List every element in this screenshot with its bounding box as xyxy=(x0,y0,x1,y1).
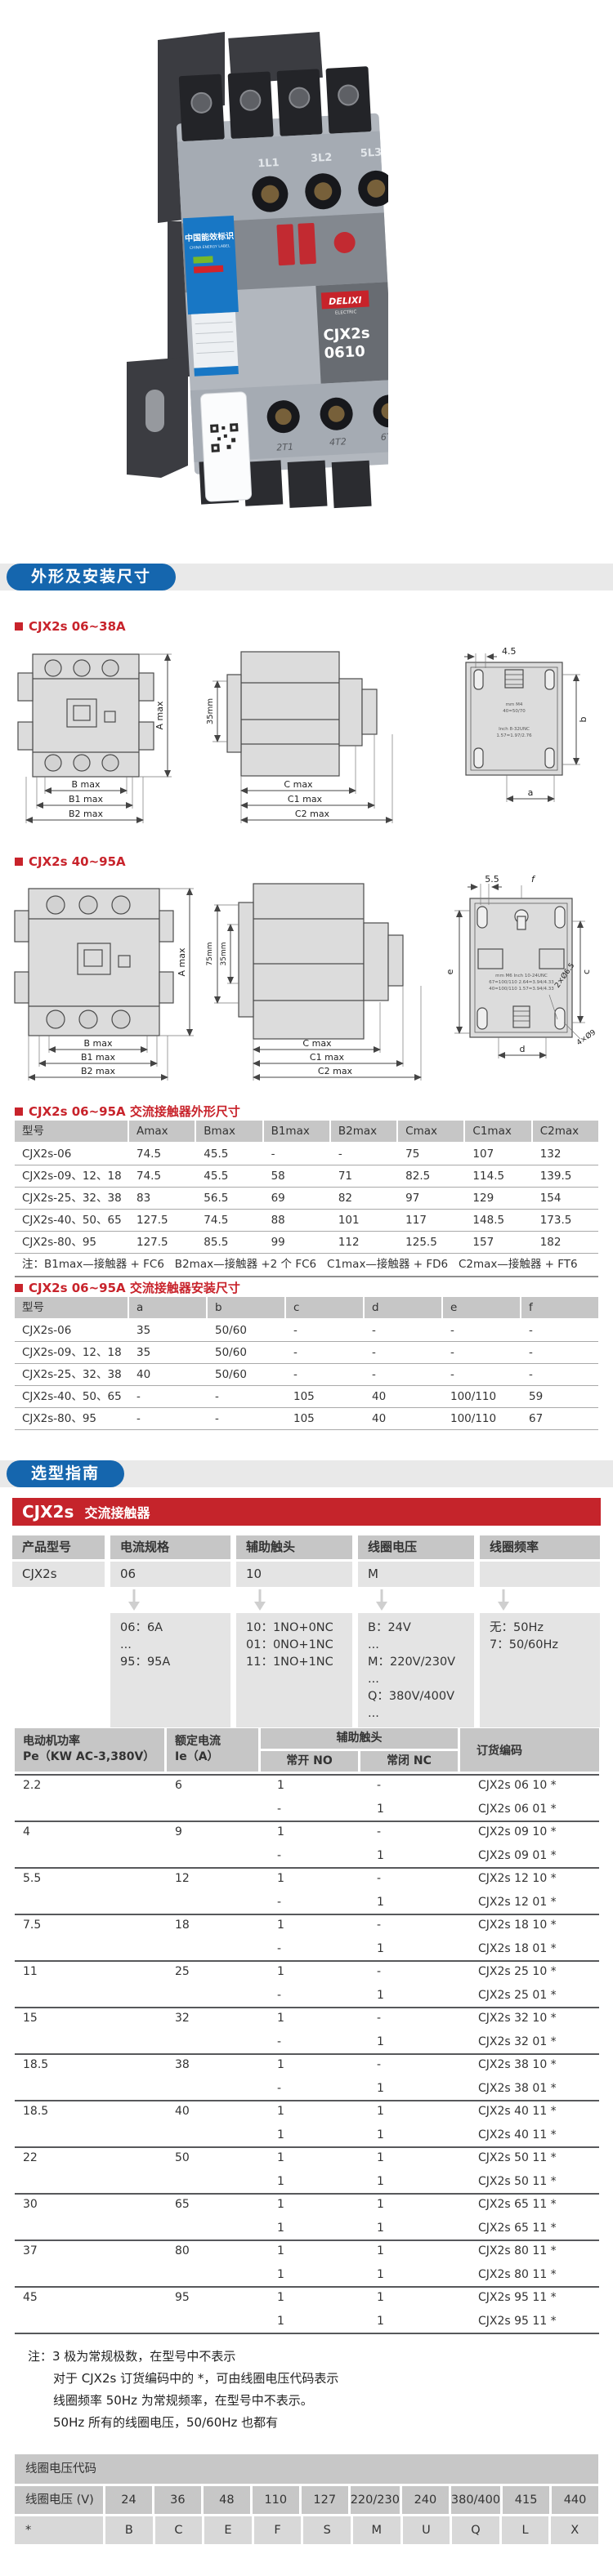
motor-power-cell: 2.2 xyxy=(15,1774,164,1798)
dim-b-max: B max xyxy=(83,1038,112,1049)
bmax-cell: 45.5 xyxy=(196,1143,262,1165)
b1max-cell: 58 xyxy=(264,1165,329,1187)
rated-current-cell: 32 xyxy=(167,2007,258,2030)
red-square-bullet-icon xyxy=(15,622,23,631)
drawing2-label-text: CJX2s 40~95A xyxy=(29,854,126,869)
c-cell: - xyxy=(286,1364,363,1385)
order-code-cell: CJX2s 95 11 * xyxy=(460,2310,599,2333)
c2max-cell: 132 xyxy=(533,1143,598,1165)
order-code-cell: CJX2s 18 10 * xyxy=(460,1914,599,1937)
dim-c1-max: C1 max xyxy=(310,1052,345,1063)
no-contact-cell: 1 xyxy=(261,1914,358,1937)
rated-current-cell: 6 xyxy=(167,1774,258,1798)
c2max-cell: 173.5 xyxy=(533,1210,598,1231)
order-code-cell: CJX2s 95 11 * xyxy=(460,2286,599,2310)
c-cell: 105 xyxy=(286,1386,363,1407)
banner-model: CJX2s xyxy=(22,1502,74,1522)
arrow-cell xyxy=(480,1589,600,1611)
detail-spacer xyxy=(12,1613,105,1727)
order-code-cell: CJX2s 80 11 * xyxy=(460,2240,599,2263)
bmax-cell: 56.5 xyxy=(196,1188,262,1209)
e-cell: 100/110 xyxy=(443,1386,520,1407)
c2max-cell: 139.5 xyxy=(533,1165,598,1187)
f-cell: - xyxy=(521,1320,598,1341)
nc-contact-cell: 1 xyxy=(360,2146,458,2170)
order-row: 1 1 CJX2s 65 11 * xyxy=(15,2217,599,2240)
no-contact-cell: - xyxy=(261,1984,358,2008)
rated-current-cell: 40 xyxy=(167,2100,258,2124)
plate-line-2: 67=100/110 2.64=3.94/4.33 xyxy=(489,980,554,985)
no-subheader: 常开 NO xyxy=(261,1751,358,1772)
voltage-cell: 440 xyxy=(552,2486,598,2514)
model-name: CJX2s xyxy=(323,325,370,345)
no-contact-cell: 1 xyxy=(261,2146,358,2170)
no-contact-cell: 1 xyxy=(261,1774,358,1798)
dim-e: e xyxy=(445,969,455,974)
code-cell: B xyxy=(105,2516,153,2544)
column-header: a xyxy=(129,1297,206,1318)
coil-voltage-row: 线圈电压 (V) 243648110127220/230240380/40041… xyxy=(15,2486,598,2514)
c2max-cell: 182 xyxy=(533,1232,598,1253)
order-row: 18.5 40 1 1 CJX2s 40 11 * xyxy=(15,2100,599,2124)
nc-contact-cell: 1 xyxy=(360,1798,458,1821)
bracket-slot xyxy=(145,390,164,432)
b2max-cell: 112 xyxy=(331,1232,396,1253)
nc-contact-cell: 1 xyxy=(360,2217,458,2240)
plate-line-3: Inch 8-32UNC xyxy=(499,727,530,732)
rated-current-cell: 80 xyxy=(167,2240,258,2263)
down-arrow-icon xyxy=(128,1589,140,1611)
voltage-cell: 380/400 xyxy=(451,2486,500,2514)
rated-current-line2: Ie（A） xyxy=(175,1749,258,1765)
e-cell: 100/110 xyxy=(443,1408,520,1429)
drawing2-label: CJX2s 40~95A xyxy=(15,854,126,869)
option-line: 95：95A xyxy=(120,1654,230,1671)
rated-current-cell xyxy=(167,2263,258,2287)
order-row: 1 1 CJX2s 50 11 * xyxy=(15,2170,599,2194)
motor-power-cell: 18.5 xyxy=(15,2053,164,2077)
voltage-cell: 220/230 xyxy=(351,2486,400,2514)
motor-power-cell xyxy=(15,1937,164,1961)
a-cell: 35 xyxy=(129,1342,206,1363)
motor-power-cell xyxy=(15,1891,164,1914)
mounting-dimension-table: 型号abcdef CJX2s-06 35 50/60 - - - - CJX2s… xyxy=(15,1297,598,1430)
option-line: ... xyxy=(368,1671,474,1688)
motor-power-cell: 18.5 xyxy=(15,2100,164,2124)
motor-power-cell xyxy=(15,2077,164,2101)
dim-b-max: B max xyxy=(71,779,100,790)
order-code-cell: CJX2s 38 10 * xyxy=(460,2053,599,2077)
outline-table-body: CJX2s-06 74.5 45.5 - - 75 107 132 CJX2s-… xyxy=(15,1143,598,1254)
terminal-label-6t3: 6T3 xyxy=(380,431,388,443)
plate-line-4: 1.57=1.97/2.76 xyxy=(496,733,532,738)
nc-contact-cell: 1 xyxy=(360,2170,458,2194)
dim-b2-max: B2 max xyxy=(69,809,103,819)
order-row: - 1 CJX2s 09 01 * xyxy=(15,1844,599,1868)
plate-line-3: 40=100/110 1.57=3.94/4.33 xyxy=(489,987,554,992)
ordering-table: 电动机功率 Pe（KW AC-3,380V） 额定电流 Ie（A） 辅助触头 订… xyxy=(15,1728,599,2334)
rated-current-header: 额定电流 Ie（A） xyxy=(167,1728,258,1772)
red-square-bullet-icon xyxy=(15,1284,23,1292)
dim-c-max: C max xyxy=(302,1038,332,1049)
dimension-drawing-40-95: A max B max B1 max B2 max 75mm 35mm C ma… xyxy=(8,874,605,1091)
table-row: CJX2s-25、32、38 40 50/60 - - - - xyxy=(15,1364,598,1386)
selection-value-cell xyxy=(480,1562,600,1587)
nc-contact-cell: 1 xyxy=(360,2077,458,2101)
order-code-cell: CJX2s 12 10 * xyxy=(460,1867,599,1891)
dim-b2-max: B2 max xyxy=(81,1066,115,1076)
order-row: 1 1 CJX2s 80 11 * xyxy=(15,2263,599,2287)
selection-column-header: 产品型号 xyxy=(12,1535,105,1559)
table-row: CJX2s-80、95 127.5 85.5 99 112 125.5 157 … xyxy=(15,1232,598,1254)
motor-power-line2: Pe（KW AC-3,380V） xyxy=(23,1749,164,1765)
nc-contact-cell: - xyxy=(360,1867,458,1891)
b-cell: - xyxy=(208,1386,284,1407)
rated-current-cell: 65 xyxy=(167,2193,258,2217)
selection-detail-row: 06：6A...95：95A 10：1NO+0NC01：0NO+1NC11：1N… xyxy=(12,1613,600,1727)
nc-contact-cell: 1 xyxy=(360,2263,458,2287)
c-cell: 105 xyxy=(286,1408,363,1429)
c1max-cell: 157 xyxy=(465,1232,530,1253)
nc-contact-cell: - xyxy=(360,1960,458,1984)
code-cell: M xyxy=(353,2516,400,2544)
section-bar-dimensions: 外形及安装尺寸 xyxy=(0,564,613,591)
no-contact-cell: - xyxy=(261,1844,358,1868)
code-cell: F xyxy=(254,2516,302,2544)
cmax-cell: 75 xyxy=(398,1143,463,1165)
no-contact-cell: 1 xyxy=(261,2193,358,2217)
qr-label xyxy=(200,392,252,502)
rated-current-cell xyxy=(167,1844,258,1868)
c1max-cell: 148.5 xyxy=(465,1210,530,1231)
column-header: 型号 xyxy=(15,1121,128,1142)
coil-frequency-options: 无：50Hz7：50/60Hz xyxy=(480,1613,600,1727)
voltage-cell: 127 xyxy=(302,2486,348,2514)
motor-power-cell xyxy=(15,1984,164,2008)
a-cell: - xyxy=(129,1386,206,1407)
section-title-dimensions: 外形及安装尺寸 xyxy=(7,564,176,591)
nc-contact-cell: 1 xyxy=(360,2286,458,2310)
order-code-cell: CJX2s 50 11 * xyxy=(460,2146,599,2170)
table-row: CJX2s-40、50、65 127.5 74.5 88 101 117 148… xyxy=(15,1210,598,1232)
table-row: CJX2s-80、95 - - 105 40 100/110 67 xyxy=(15,1408,598,1430)
order-row: - 1 CJX2s 38 01 * xyxy=(15,2077,599,2101)
section-title-selection: 选型指南 xyxy=(7,1460,124,1487)
e-cell: - xyxy=(443,1364,520,1385)
table-row: CJX2s-40、50、65 - - 105 40 100/110 59 xyxy=(15,1386,598,1408)
note-line-4: 50Hz 所有的线圈电压，50/60Hz 也都有 xyxy=(53,2412,600,2434)
code-cell: L xyxy=(502,2516,549,2544)
dim-c2-max: C2 max xyxy=(318,1066,353,1076)
terminal-label-3l2: 3L2 xyxy=(311,152,333,165)
b2max-cell: 82 xyxy=(331,1188,396,1209)
dim-c1-max: C1 max xyxy=(288,794,323,804)
outline-table-header: 型号AmaxBmaxB1maxB2maxCmaxC1maxC2max xyxy=(15,1121,598,1142)
bmax-cell: 45.5 xyxy=(196,1165,262,1187)
c-cell: - xyxy=(286,1320,363,1341)
model-cell: CJX2s-40、50、65 xyxy=(15,1210,128,1231)
nc-contact-cell: - xyxy=(360,2007,458,2030)
order-row: 15 32 1 - CJX2s 32 10 * xyxy=(15,2007,599,2030)
code-cell: S xyxy=(303,2516,351,2544)
red-square-bullet-icon xyxy=(15,1108,23,1116)
rated-current-cell xyxy=(167,2217,258,2240)
motor-power-cell xyxy=(15,1798,164,1821)
no-contact-cell: 1 xyxy=(261,2170,358,2194)
voltage-cell: 24 xyxy=(105,2486,152,2514)
back-plate-text: mm M6 Inch 10-24UNC 67=100/110 2.64=3.94… xyxy=(489,974,554,992)
b-cell: 50/60 xyxy=(208,1364,284,1385)
amax-cell: 83 xyxy=(129,1188,195,1209)
contactor-body: 1L1 3L2 5L3 中国能效标识 CHINA ENERGY LABEL DE… xyxy=(174,65,388,510)
order-row: 5.5 12 1 - CJX2s 12 10 * xyxy=(15,1867,599,1891)
column-header: f xyxy=(521,1297,598,1318)
motor-power-cell: 37 xyxy=(15,2240,164,2263)
column-header: C1max xyxy=(465,1121,530,1142)
down-arrow-icon xyxy=(498,1589,509,1611)
order-row: - 1 CJX2s 06 01 * xyxy=(15,1798,599,1821)
rated-current-cell xyxy=(167,2170,258,2194)
option-line: 11：1NO+1NC xyxy=(246,1654,352,1671)
bmax-cell: 85.5 xyxy=(196,1232,262,1253)
column-header: B2max xyxy=(331,1121,396,1142)
d-cell: - xyxy=(365,1364,441,1385)
no-contact-cell: 1 xyxy=(261,2100,358,2124)
order-code-cell: CJX2s 18 01 * xyxy=(460,1937,599,1961)
option-line: B：24V xyxy=(368,1620,474,1637)
aux-contact-header: 辅助触头 xyxy=(261,1728,458,1749)
a-cell: 40 xyxy=(129,1364,206,1385)
no-contact-cell: 1 xyxy=(261,2240,358,2263)
motor-power-cell xyxy=(15,2310,164,2333)
rated-current-cell: 12 xyxy=(167,1867,258,1891)
spec-panel xyxy=(191,312,238,368)
model-cell: CJX2s-06 xyxy=(15,1320,128,1341)
rated-current-cell xyxy=(167,2030,258,2054)
ordering-table-body: 2.2 6 1 - CJX2s 06 10 * - 1 CJX2s 06 01 … xyxy=(15,1774,599,2334)
back-view xyxy=(466,662,562,775)
order-code-cell: CJX2s 65 11 * xyxy=(460,2217,599,2240)
outline-dimension-table: 型号AmaxBmaxB1maxB2maxCmaxC1maxC2max CJX2s… xyxy=(15,1121,598,1277)
option-line: M：220V/230V xyxy=(368,1654,474,1671)
no-contact-cell: - xyxy=(261,2077,358,2101)
model-cell: CJX2s-80、95 xyxy=(15,1232,128,1253)
a-cell: - xyxy=(129,1408,206,1429)
model-cell: CJX2s-40、50、65 xyxy=(15,1386,128,1407)
rated-current-cell: 95 xyxy=(167,2286,258,2310)
motor-power-cell: 11 xyxy=(15,1960,164,1984)
column-header: b xyxy=(208,1297,284,1318)
contactor-photo-illustration: 1L1 3L2 5L3 中国能效标识 CHINA ENERGY LABEL DE… xyxy=(69,20,388,510)
arrow-cell xyxy=(110,1589,230,1611)
selection-column-header: 辅助触头 xyxy=(236,1535,352,1559)
side-view xyxy=(239,884,403,1039)
current-spec-options: 06：6A...95：95A xyxy=(110,1613,230,1727)
terminal-label-2t1: 2T1 xyxy=(276,442,293,453)
table-row: CJX2s-06 74.5 45.5 - - 75 107 132 xyxy=(15,1143,598,1165)
dim-b1-max: B1 max xyxy=(81,1052,115,1063)
option-line: 01：0NO+1NC xyxy=(246,1637,352,1654)
brand-name: DELIXI xyxy=(329,295,362,307)
coil-voltage-options: B：24V...M：220V/230V...Q：380V/400V... xyxy=(358,1613,474,1727)
nc-contact-cell: 1 xyxy=(360,1984,458,2008)
dim-a-hole: a xyxy=(528,787,534,798)
b1max-cell: 88 xyxy=(264,1210,329,1231)
no-contact-cell: 1 xyxy=(261,2124,358,2147)
selection-guide: 产品型号电流规格辅助触头线圈电压线圈频率 CJX2s0610M 06：6A...… xyxy=(12,1535,600,1727)
option-line: ... xyxy=(368,1637,474,1654)
rated-current-cell: 18 xyxy=(167,1914,258,1937)
voltage-cell: 110 xyxy=(253,2486,299,2514)
rated-current-cell xyxy=(167,1891,258,1914)
selection-arrow-row xyxy=(12,1589,600,1611)
option-line: Q：380V/400V xyxy=(368,1688,474,1705)
down-arrow-icon xyxy=(254,1589,266,1611)
no-contact-cell: - xyxy=(261,2030,358,2054)
order-row: 18.5 38 1 - CJX2s 38 10 * xyxy=(15,2053,599,2077)
b1max-cell: 99 xyxy=(264,1232,329,1253)
column-header: Bmax xyxy=(196,1121,262,1142)
a-cell: 35 xyxy=(129,1320,206,1341)
rated-current-cell xyxy=(167,2124,258,2147)
order-row: 7.5 18 1 - CJX2s 18 10 * xyxy=(15,1914,599,1937)
order-row: 2.2 6 1 - CJX2s 06 10 * xyxy=(15,1774,599,1798)
coil-voltage-code-table: 线圈电压代码 线圈电压 (V) 243648110127220/23024038… xyxy=(15,2454,598,2544)
dim-4-5: 4.5 xyxy=(502,646,517,657)
motor-power-cell: 4 xyxy=(15,1821,164,1844)
aux-contact-options: 10：1NO+0NC01：0NO+1NC11：1NO+1NC xyxy=(236,1613,352,1727)
motor-power-cell xyxy=(15,2263,164,2287)
model-number: 0610 xyxy=(324,343,365,363)
nc-contact-cell: 1 xyxy=(360,2240,458,2263)
amax-cell: 74.5 xyxy=(129,1143,195,1165)
motor-power-cell xyxy=(15,2030,164,2054)
arrow-cell xyxy=(358,1589,474,1611)
ordering-table-header: 电动机功率 Pe（KW AC-3,380V） 额定电流 Ie（A） 辅助触头 订… xyxy=(15,1728,599,1772)
voltage-cell: 48 xyxy=(204,2486,250,2514)
order-code-cell: CJX2s 50 11 * xyxy=(460,2170,599,2194)
option-line: 06：6A xyxy=(120,1620,230,1637)
back-view xyxy=(470,898,572,1037)
red-square-bullet-icon xyxy=(15,858,23,866)
rated-current-line1: 额定电流 xyxy=(175,1734,258,1749)
amax-cell: 74.5 xyxy=(129,1165,195,1187)
no-contact-cell: 1 xyxy=(261,1960,358,1984)
model-cell: CJX2s-09、12、18 xyxy=(15,1165,128,1187)
no-contact-cell: 1 xyxy=(261,1867,358,1891)
cmax-cell: 117 xyxy=(398,1210,463,1231)
model-cell: CJX2s-25、32、38 xyxy=(15,1188,128,1209)
rated-current-cell xyxy=(167,1984,258,2008)
motor-power-cell: 45 xyxy=(15,2286,164,2310)
note-line-2: 对于 CJX2s 订货编码中的 *，可由线圈电压代码表示 xyxy=(53,2368,600,2390)
voltage-cell: 415 xyxy=(503,2486,549,2514)
order-code-header: 订货编码 xyxy=(460,1728,599,1772)
order-code-cell: CJX2s 40 11 * xyxy=(460,2124,599,2147)
mounting-table-label: CJX2s 06~95A 交流接触器安装尺寸 xyxy=(15,1279,240,1296)
dim-b1-max: B1 max xyxy=(69,794,103,804)
code-cell: C xyxy=(155,2516,203,2544)
nc-contact-cell: - xyxy=(360,1914,458,1937)
selection-column-header: 线圈频率 xyxy=(480,1535,600,1559)
dim-rail-35mm: 35mm xyxy=(220,943,228,966)
dimension-drawing-06-38: A max B max B1 max B2 max 35mm C max C1 … xyxy=(8,642,605,835)
order-code-cell: CJX2s 80 11 * xyxy=(460,2263,599,2287)
rated-current-cell xyxy=(167,1937,258,1961)
f-cell: - xyxy=(521,1342,598,1363)
selection-column-header: 电流规格 xyxy=(110,1535,230,1559)
selection-value-cell: 06 xyxy=(110,1562,230,1587)
order-code-cell: CJX2s 06 10 * xyxy=(460,1774,599,1798)
motor-power-cell: 30 xyxy=(15,2193,164,2217)
b-cell: 50/60 xyxy=(208,1320,284,1341)
code-cell: E xyxy=(204,2516,252,2544)
drawing1-label: CJX2s 06~38A xyxy=(15,619,126,634)
order-row: 30 65 1 1 CJX2s 65 11 * xyxy=(15,2193,599,2217)
rated-current-cell: 25 xyxy=(167,1960,258,1984)
order-code-cell: CJX2s 40 11 * xyxy=(460,2100,599,2124)
model-cell: CJX2s-80、95 xyxy=(15,1408,128,1429)
cmax-cell: 97 xyxy=(398,1188,463,1209)
column-header: Cmax xyxy=(398,1121,463,1142)
order-code-cell: CJX2s 09 10 * xyxy=(460,1821,599,1844)
nc-contact-cell: 1 xyxy=(360,1891,458,1914)
dim-c-max: C max xyxy=(284,779,313,790)
code-cell: X xyxy=(551,2516,598,2544)
dim-a-max: A max xyxy=(177,947,187,976)
column-header: e xyxy=(443,1297,520,1318)
order-code-cell: CJX2s 32 01 * xyxy=(460,2030,599,2054)
motor-power-cell: 7.5 xyxy=(15,1914,164,1937)
b2max-cell: 71 xyxy=(331,1165,396,1187)
dim-c2-max: C2 max xyxy=(295,809,330,819)
order-code-cell: CJX2s 38 01 * xyxy=(460,2077,599,2101)
nc-contact-cell: 1 xyxy=(360,2310,458,2333)
column-header: Amax xyxy=(129,1121,195,1142)
nc-contact-cell: 1 xyxy=(360,1937,458,1961)
terminal-label-4t2: 4T2 xyxy=(329,436,347,448)
motor-power-cell: 15 xyxy=(15,2007,164,2030)
dim-rail-75mm: 75mm xyxy=(206,943,214,966)
column-header: C2max xyxy=(533,1121,598,1142)
dim-5-5: 5.5 xyxy=(485,874,499,885)
no-contact-cell: 1 xyxy=(261,2217,358,2240)
coil-voltage-row-label: 线圈电压 (V) xyxy=(15,2486,103,2514)
nc-contact-cell: - xyxy=(360,2053,458,2077)
model-cell: CJX2s-06 xyxy=(15,1143,128,1165)
model-cell: CJX2s-09、12、18 xyxy=(15,1342,128,1363)
order-row: 1 1 CJX2s 95 11 * xyxy=(15,2310,599,2333)
dim-4xd9: 4×Ø9 xyxy=(575,1027,597,1047)
drawing1-label-text: CJX2s 06~38A xyxy=(29,619,126,634)
motor-power-header: 电动机功率 Pe（KW AC-3,380V） xyxy=(15,1728,164,1772)
rated-current-cell: 50 xyxy=(167,2146,258,2170)
order-row: 45 95 1 1 CJX2s 95 11 * xyxy=(15,2286,599,2310)
cmax-cell: 125.5 xyxy=(398,1232,463,1253)
order-row: - 1 CJX2s 18 01 * xyxy=(15,1937,599,1961)
product-photo: 1L1 3L2 5L3 中国能效标识 CHINA ENERGY LABEL DE… xyxy=(69,20,388,510)
motor-power-cell xyxy=(15,1844,164,1868)
code-cell: U xyxy=(403,2516,450,2544)
nc-contact-cell: 1 xyxy=(360,2124,458,2147)
nc-contact-cell: 1 xyxy=(360,2193,458,2217)
e-cell: - xyxy=(443,1320,520,1341)
order-code-cell: CJX2s 65 11 * xyxy=(460,2193,599,2217)
nc-contact-cell: 1 xyxy=(360,1844,458,1868)
side-view xyxy=(227,652,377,776)
option-line: 10：1NO+0NC xyxy=(246,1620,352,1637)
option-line: 7：50/60Hz xyxy=(490,1637,600,1654)
